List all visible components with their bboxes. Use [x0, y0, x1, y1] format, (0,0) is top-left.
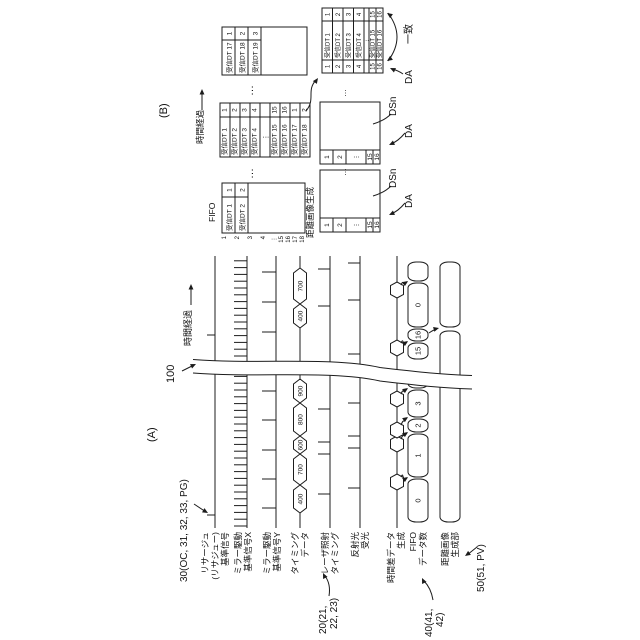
ds-row-label: 受信DT 3 — [344, 32, 352, 58]
fifo-row-label: 受信DT 18 — [300, 124, 309, 155]
section-b-label: (B) — [158, 103, 170, 118]
fifo-slot-index: 2 — [235, 235, 241, 239]
ds-slot-index: 16 — [378, 63, 384, 70]
section-a-label: (A) — [146, 427, 158, 442]
ds-slot-index: 1 — [325, 64, 331, 68]
ds-table-2: 12⋮1516 — [320, 102, 381, 164]
ds-slot-index: 2 — [337, 155, 344, 159]
signal-label-lissajous: リサージュ(リサジュー)基準信号 — [200, 532, 230, 640]
fifo-count-value: 2 — [414, 423, 423, 427]
fifo-row-label: 受信DT 16 — [280, 124, 289, 155]
signal-label-reflect: 反射光受光 — [350, 532, 370, 640]
fifo-table-2: 受信DT 11受信DT 22受信DT 33受信DT 44⋮受信DT 1515受信… — [220, 103, 311, 157]
timing-cell-value: 400 — [297, 310, 304, 321]
fifo-slot-index: ⋮ — [271, 236, 278, 242]
ds-row-label: 受信DT 16 — [376, 29, 384, 58]
ds-slot-index: 4 — [357, 64, 363, 68]
fifo-count-value: 15 — [414, 347, 423, 355]
ellipsis-top-1: … — [244, 168, 256, 179]
signal-label-mirror-y: ミラー駆動基準信号Y — [262, 532, 282, 640]
ds-row-label: 受信DT 2 — [334, 32, 342, 58]
fifo-row-label: 受信DT 3 — [240, 128, 249, 155]
fifo-row-value: 1 — [222, 108, 229, 112]
fifo-table-3: 受信DT 171受信DT 182受信DT 193 — [222, 27, 307, 75]
ds-row-value: 1 — [325, 12, 331, 16]
timing-cell-value: 400 — [297, 493, 304, 504]
fifo-row-label: 受信DT 2 — [230, 128, 239, 155]
ref-30-label: 30(OC, 31, 32, 33, PG) — [179, 479, 190, 582]
ellipsis-top-2: … — [244, 85, 256, 96]
fifo-count-value: 0 — [414, 303, 423, 307]
timing-cell-value: 600 — [297, 439, 304, 450]
ellipsis-bottom-1: … — [340, 168, 349, 176]
signal-label-fifo-count: FIFOデータ数 — [408, 532, 428, 640]
range-gen-caption: 距離画像生成 — [306, 187, 315, 238]
ds-row-value: 16 — [378, 11, 384, 18]
ds-row-label: 受信DT 4 — [355, 32, 363, 58]
fifo-slot-index: 3 — [248, 235, 254, 239]
fifo-row-label: 受信DT 19 — [251, 42, 260, 73]
ds-slot-index: 1 — [324, 155, 331, 159]
fifo-row-value: 3 — [253, 31, 260, 35]
fifo-table-1: 受信DT 11受信DT 221234⋮15161718 — [222, 183, 306, 243]
fifo-row-label: 受信DT 17 — [225, 42, 234, 73]
signal-label-mirror-x: ミラー駆動基準信号X — [233, 532, 253, 640]
da-label-3: DA — [404, 70, 415, 84]
ds-slot-index: 2 — [336, 64, 342, 68]
fifo-row-label: 受信DT 15 — [270, 124, 279, 155]
ds-slot-index: ⋮ — [353, 154, 360, 161]
fifo-row-value: 2 — [232, 108, 239, 112]
fifo-slot-index: 1 — [222, 235, 228, 239]
time-elapsed-label-a: 時間経過 — [184, 310, 194, 346]
fifo-row-label: 受信DT 1 — [220, 128, 229, 155]
ds-slot-index: 1 — [324, 223, 331, 227]
table-gap-dots: ⋮ — [263, 134, 270, 141]
fifo-row-value: 2 — [240, 31, 247, 35]
fifo-slot-index: 16 — [286, 235, 292, 242]
ellipsis-bottom-2: … — [340, 89, 349, 97]
ds-table-3: 1受信DT 112受信DT 223受信DT 334受信DT 44⋮15受信DT … — [322, 8, 384, 73]
fifo-row-value: 1 — [227, 31, 234, 35]
fifo-row-value: 1 — [292, 108, 299, 112]
fifo-row-label: 受信DT 1 — [225, 204, 234, 231]
fifo-count-value: 1 — [414, 453, 423, 457]
fifo-slot-index: 4 — [261, 235, 267, 239]
time-break-band — [193, 360, 472, 390]
da-label-2: DA — [404, 124, 415, 138]
dsn-label-1: DSn — [388, 169, 399, 188]
fifo-slot-index: 17 — [293, 235, 299, 242]
ds-slot-index: 3 — [346, 64, 352, 68]
ds-slot-index: 16 — [374, 221, 381, 229]
dsn-label-2: DSn — [388, 97, 399, 116]
time-elapsed-label-b: 時間経過 — [196, 110, 205, 144]
ds-slot-index: ⋮ — [353, 222, 360, 229]
ds-slot-index: 2 — [337, 223, 344, 227]
waveform-rows: 400700600800900400700012315160 — [207, 256, 460, 528]
ds-row-value: 2 — [336, 12, 342, 16]
fifo-row-label: 受信DT 4 — [250, 128, 259, 155]
rotated-canvas: 400700600800900400700012315160受信DT 11受信D… — [0, 0, 640, 640]
match-label: 一致 — [404, 24, 415, 44]
fifo-row-value: 1 — [227, 188, 234, 192]
timing-cell-value: 900 — [297, 385, 304, 396]
signal-label-laser: レーザ照射タイミング — [320, 532, 340, 640]
ds-row-value: 3 — [346, 12, 352, 16]
fifo-row-value: 4 — [252, 108, 259, 112]
fifo-count-value: 16 — [414, 331, 423, 339]
ref-100-label: 100 — [165, 365, 177, 383]
fifo-table-caption: FIFO — [208, 203, 217, 222]
fifo-row-label: 受信DT 2 — [238, 204, 247, 231]
ds-row-label: 受信DT 1 — [323, 32, 331, 58]
patent-timing-figure: 400700600800900400700012315160受信DT 11受信D… — [0, 0, 640, 640]
fifo-count-value: 0 — [414, 498, 423, 502]
ds-slot-index: 16 — [374, 153, 381, 161]
timing-cell-value: 800 — [297, 414, 304, 425]
timing-cell-value: 700 — [297, 280, 304, 291]
signal-label-diff-gen: 時間差データ生成 — [386, 532, 406, 640]
fifo-row-value: 2 — [240, 188, 247, 192]
ref-50-label: 50(51, PV) — [476, 544, 487, 592]
fifo-row-value: 16 — [282, 106, 289, 114]
signal-label-timing-data: タイミングデータ — [290, 532, 310, 640]
fifo-row-value: 15 — [272, 106, 279, 114]
fifo-row-label: 受信DT 17 — [290, 124, 299, 155]
timing-cell-value: 700 — [297, 464, 304, 475]
ds-table-1: 12⋮1516 — [320, 170, 381, 232]
fifo-row-label: 受信DT 18 — [238, 42, 247, 73]
fifo-row-value: 3 — [242, 108, 249, 112]
fifo-slot-index: 15 — [279, 235, 285, 242]
fifo-count-value: 3 — [414, 401, 423, 405]
signal-label-range-image: 距離画像生成部 — [440, 532, 460, 640]
da-label-1: DA — [404, 194, 415, 208]
ds-row-value: 4 — [357, 12, 363, 16]
